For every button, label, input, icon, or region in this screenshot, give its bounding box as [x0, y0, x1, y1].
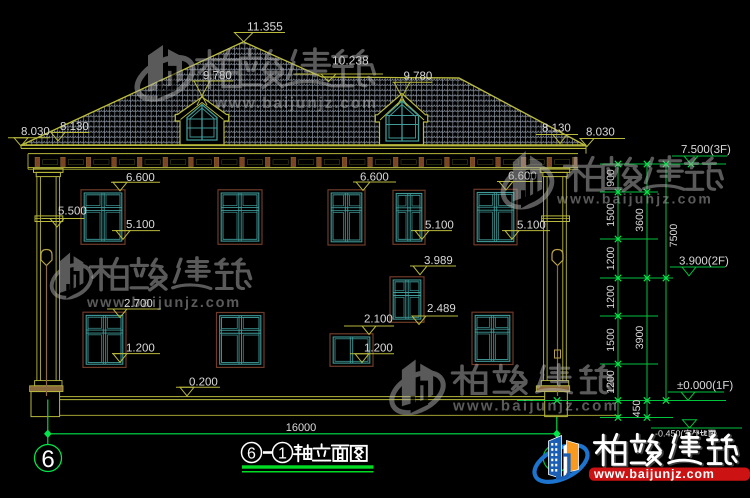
svg-text:5.100: 5.100 — [425, 220, 454, 232]
svg-text:7.500(3F): 7.500(3F) — [681, 144, 731, 156]
svg-text:6: 6 — [41, 446, 54, 473]
svg-text:-0.450(: -0.450( — [655, 429, 684, 439]
svg-text:1500: 1500 — [605, 328, 617, 352]
svg-text:2.100: 2.100 — [364, 314, 393, 326]
svg-text:0.200: 0.200 — [189, 377, 218, 389]
svg-text:9.780: 9.780 — [404, 71, 433, 83]
svg-text:1.200: 1.200 — [126, 343, 155, 355]
svg-text:±0.000(1F): ±0.000(1F) — [677, 380, 733, 392]
svg-text:2.489: 2.489 — [427, 303, 456, 315]
svg-text:8.030: 8.030 — [586, 127, 615, 139]
svg-text:3.989: 3.989 — [424, 255, 453, 267]
svg-text:3600: 3600 — [634, 208, 646, 232]
svg-text:www.baijunjz.com: www.baijunjz.com — [556, 191, 713, 207]
svg-text:5.100: 5.100 — [517, 220, 546, 232]
svg-text:www.baijunjz.com: www.baijunjz.com — [593, 467, 715, 481]
svg-text:www.baijunjz.com: www.baijunjz.com — [214, 95, 378, 112]
svg-text:5.100: 5.100 — [126, 219, 155, 231]
svg-text:3900: 3900 — [634, 326, 646, 350]
svg-text:1.200: 1.200 — [364, 343, 393, 355]
svg-text:1500: 1500 — [605, 203, 617, 227]
svg-text:450: 450 — [631, 400, 643, 418]
svg-text:3.900(2F): 3.900(2F) — [679, 256, 729, 268]
svg-text:www.baijunjz.com: www.baijunjz.com — [86, 295, 241, 311]
svg-text:5.500: 5.500 — [58, 206, 87, 218]
svg-text:www.baijunjz.com: www.baijunjz.com — [452, 398, 619, 415]
svg-text:8.030: 8.030 — [21, 126, 50, 138]
svg-text:1200: 1200 — [605, 285, 617, 309]
svg-text:8.130: 8.130 — [542, 123, 571, 135]
svg-text:11.355: 11.355 — [247, 20, 283, 34]
svg-text:8.130: 8.130 — [60, 121, 89, 133]
svg-text:16000: 16000 — [286, 422, 317, 434]
svg-text:6.600: 6.600 — [360, 172, 389, 184]
svg-text:1200: 1200 — [605, 247, 617, 271]
svg-text:1: 1 — [278, 446, 287, 463]
svg-text:6.600: 6.600 — [126, 172, 155, 184]
svg-text:6: 6 — [247, 446, 256, 463]
svg-text:7500: 7500 — [668, 224, 680, 248]
